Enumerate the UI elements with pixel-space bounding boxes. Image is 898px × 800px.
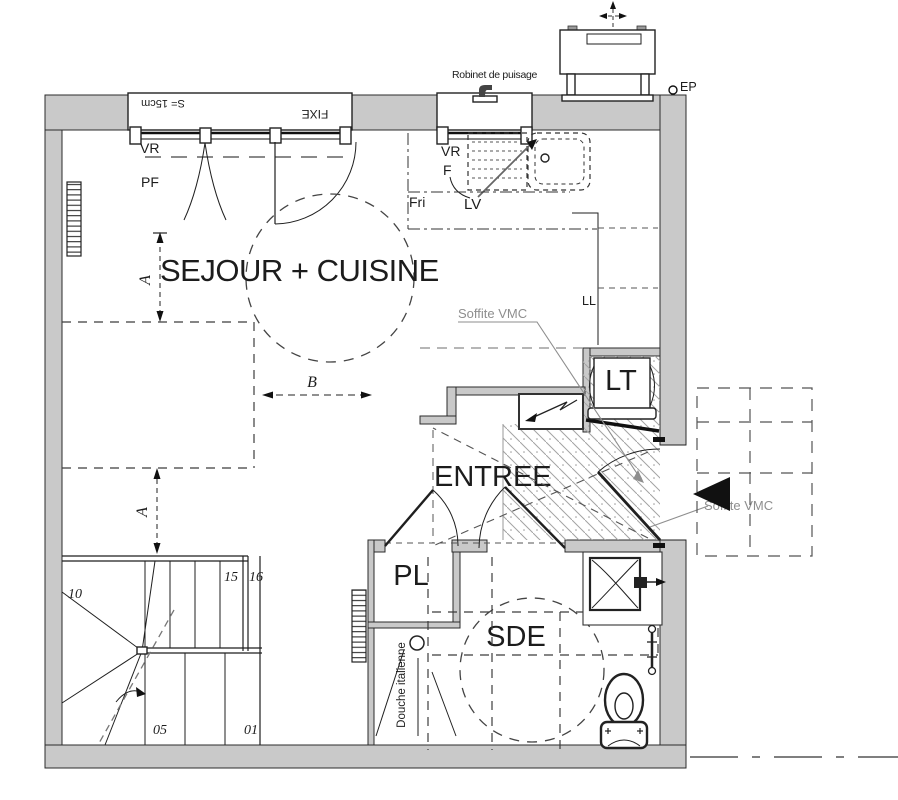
entree-label: ENTREE (434, 461, 552, 493)
grab-bar-icon (647, 626, 657, 675)
toilet-icon (601, 674, 647, 748)
washbasin-icon (583, 552, 666, 625)
stair-number-16: 16 (249, 570, 263, 585)
stair-number-01: 01 (244, 723, 258, 738)
stair-number-10: 10 (68, 587, 82, 602)
outdoor-unit (560, 1, 655, 101)
electrical-panel (519, 394, 583, 429)
lt-closet: LT (588, 358, 656, 419)
dim-a-upper-label: A (137, 275, 154, 286)
vr-left-label: VR (140, 140, 159, 156)
vr-kitchen-label: VR (441, 143, 460, 159)
f-label: F (443, 162, 452, 178)
radiator-icon-2 (352, 590, 366, 662)
lv-label: LV (464, 196, 481, 213)
lt-label: LT (605, 365, 637, 397)
shower-drain-icon (410, 636, 424, 650)
floor-plan-drawing: S= 15cm FIXE VR PF Robinet de puisage (0, 0, 898, 800)
dimension-b: B (262, 374, 372, 399)
radiator-icon (67, 182, 81, 256)
dim-a-lower-label: A (134, 507, 151, 518)
floor-plan-page: S= 15cm FIXE VR PF Robinet de puisage (0, 0, 898, 800)
stairs: 10 15 16 05 01 (62, 556, 263, 745)
dimension-a-lower: A (134, 468, 161, 554)
douche-italienne-label: Douche italienne (396, 642, 408, 728)
robinet-label: Robinet de puisage (452, 69, 538, 81)
sink-icon (528, 133, 590, 190)
living-room: SEJOUR + CUISINE A A B (62, 182, 439, 554)
sejour-cuisine-label: SEJOUR + CUISINE (160, 253, 439, 288)
landing-outline (697, 388, 812, 556)
shower-area: Douche italienne (376, 636, 456, 736)
shutter-depth-label: S= 15cm (141, 97, 185, 109)
stair-number-15: 15 (224, 570, 238, 585)
fri-label: Fri (409, 194, 425, 210)
rainwater-downpipe: EP (669, 80, 697, 94)
dim-b-label: B (307, 374, 317, 391)
fixe-label: FIXE (302, 107, 329, 121)
pl-door (385, 490, 458, 546)
bay-window: S= 15cm FIXE VR PF (128, 93, 356, 224)
dishwasher-icon (468, 133, 527, 190)
pf-label: PF (141, 174, 159, 190)
sde-label: SDE (486, 621, 546, 653)
ll-label: LL (582, 294, 596, 308)
ep-label: EP (680, 80, 697, 94)
pl-label: PL (393, 560, 428, 592)
stair-number-05: 05 (153, 723, 167, 738)
kitchen-fixtures: VR F Fri LV LL (408, 133, 658, 345)
soffite-vmc-1-label: Soffite VMC (458, 306, 527, 321)
